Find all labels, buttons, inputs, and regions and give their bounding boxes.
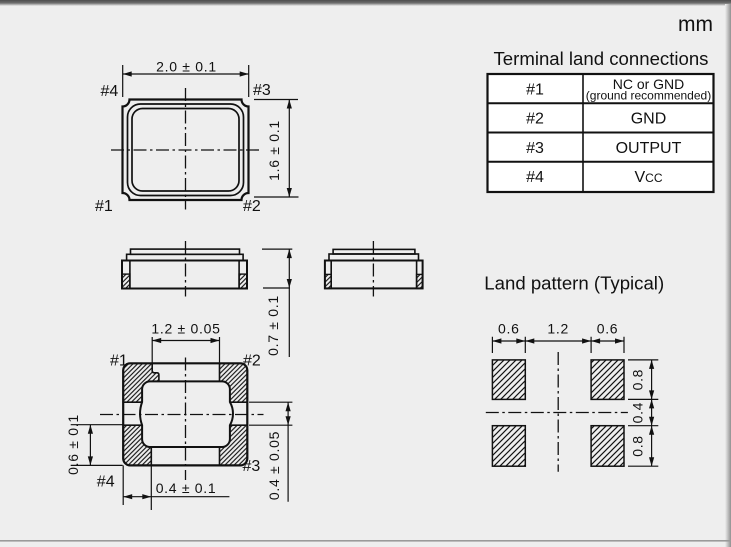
svg-text:0.7 ± 0.1: 0.7 ± 0.1 — [265, 295, 281, 356]
svg-text:0.6: 0.6 — [498, 321, 520, 337]
svg-text:#1: #1 — [110, 353, 128, 370]
svg-text:#2: #2 — [243, 353, 261, 370]
svg-text:#3: #3 — [526, 140, 544, 157]
svg-text:mm: mm — [678, 13, 713, 36]
svg-text:#4: #4 — [526, 169, 544, 186]
svg-text:0.6 ± 0.1: 0.6 ± 0.1 — [65, 414, 81, 475]
svg-text:#3: #3 — [243, 458, 261, 475]
svg-text:#3: #3 — [253, 82, 271, 99]
svg-text:GND: GND — [631, 111, 667, 128]
svg-text:0.4 ± 0.1: 0.4 ± 0.1 — [156, 480, 217, 496]
svg-text:VCC: VCC — [634, 169, 662, 186]
svg-text:#4: #4 — [97, 474, 115, 491]
svg-text:#2: #2 — [243, 198, 261, 215]
svg-text:0.4: 0.4 — [630, 402, 646, 424]
svg-text:#2: #2 — [526, 111, 544, 128]
svg-text:#1: #1 — [95, 198, 113, 215]
svg-text:1.6 ± 0.1: 1.6 ± 0.1 — [266, 120, 282, 181]
svg-text:0.4 ± 0.05: 0.4 ± 0.05 — [266, 431, 282, 500]
svg-text:0.8: 0.8 — [630, 369, 646, 391]
svg-text:1.2 ± 0.05: 1.2 ± 0.05 — [151, 321, 220, 337]
svg-text:0.8: 0.8 — [630, 435, 646, 457]
svg-text:0.6: 0.6 — [597, 321, 619, 337]
svg-text:2.0 ± 0.1: 2.0 ± 0.1 — [156, 59, 217, 75]
svg-text:Terminal land connections: Terminal land connections — [494, 48, 709, 69]
svg-text:OUTPUT: OUTPUT — [616, 140, 682, 157]
svg-text:1.2: 1.2 — [547, 321, 569, 337]
svg-text:#4: #4 — [101, 83, 119, 100]
svg-text:(ground recommended): (ground recommended) — [586, 89, 711, 103]
svg-text:#1: #1 — [526, 82, 544, 99]
svg-text:Land pattern (Typical): Land pattern (Typical) — [484, 273, 664, 294]
